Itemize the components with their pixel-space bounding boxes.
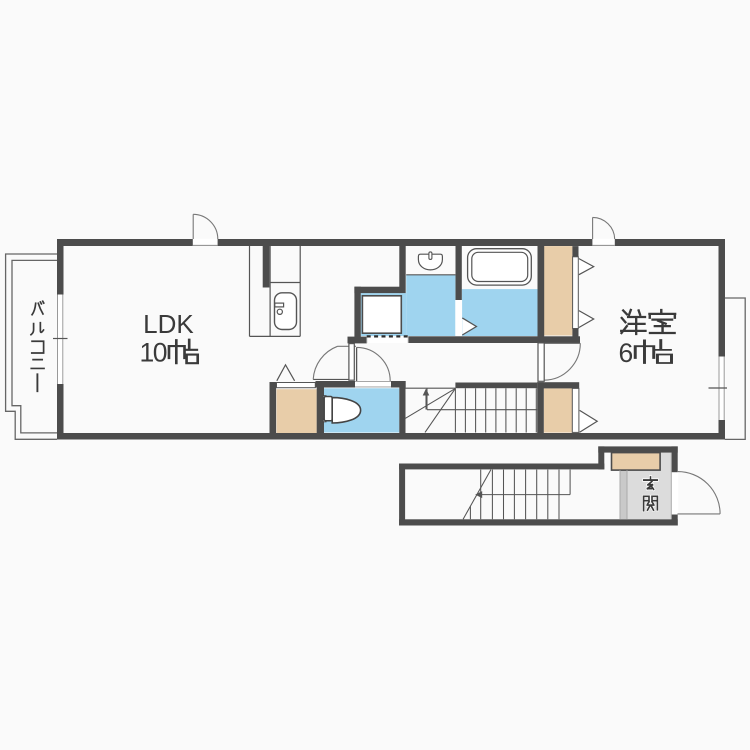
svg-text:6: 6 [619, 338, 634, 368]
svg-text:10: 10 [140, 338, 167, 368]
svg-text:LDK: LDK [143, 309, 194, 339]
